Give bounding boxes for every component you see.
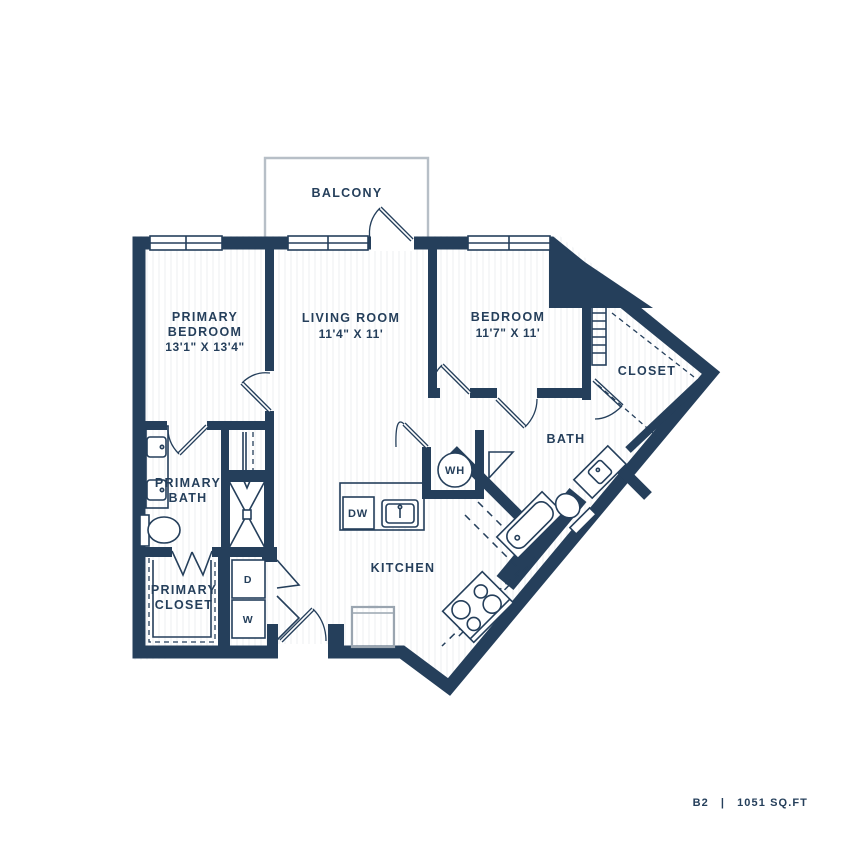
wall-suite-kitchen <box>265 430 274 562</box>
dishwasher-label: DW <box>348 508 368 520</box>
floor-plan-page: BALCONY <box>0 0 844 844</box>
window-bedroom <box>468 236 550 250</box>
water-heater-label: WH <box>445 465 465 477</box>
svg-text:PRIMARY: PRIMARY <box>155 476 221 490</box>
wall-primarybed-living <box>265 249 274 371</box>
wall-closet-top-left <box>142 547 172 557</box>
wall-wh-bottom <box>422 490 484 499</box>
kitchen-sink <box>382 500 418 527</box>
primary-bedroom-label: PRIMARY BEDROOM 13'1" X 13'4" <box>165 310 245 354</box>
wall-living-bedroom <box>428 249 437 388</box>
wall-linen-shower <box>221 470 274 481</box>
entry-opening <box>278 644 328 663</box>
wall-closet-dw <box>218 547 230 648</box>
entry-jamb-right <box>328 624 344 650</box>
balcony-label: BALCONY <box>312 186 383 200</box>
wall-wh-right <box>475 430 484 499</box>
svg-text:BATH: BATH <box>169 491 208 505</box>
svg-text:BEDROOM: BEDROOM <box>168 325 242 339</box>
shower <box>229 481 265 548</box>
svg-text:LIVING ROOM: LIVING ROOM <box>302 311 400 325</box>
svg-text:PRIMARY: PRIMARY <box>151 583 217 597</box>
floor-plan-svg: BALCONY <box>0 0 844 844</box>
svg-text:BEDROOM: BEDROOM <box>471 310 545 324</box>
washer-label: W <box>243 614 254 626</box>
kitchen-label: KITCHEN <box>371 561 436 575</box>
bath-label: BATH <box>547 432 586 446</box>
windows <box>150 236 550 250</box>
unit-area-footer: B2|1051 SQ.FT <box>693 797 808 809</box>
corner-wall-wedge <box>549 238 653 308</box>
svg-text:13'1" X 13'4": 13'1" X 13'4" <box>165 340 245 354</box>
window-living-room <box>288 236 368 250</box>
window-primary-bedroom <box>150 236 222 250</box>
wall-primarybed-bath-right <box>207 421 274 430</box>
wall-bedroom-closet <box>582 305 591 400</box>
svg-text:PRIMARY: PRIMARY <box>172 310 238 324</box>
svg-text:CLOSET: CLOSET <box>155 598 214 612</box>
shower-drain <box>243 510 251 519</box>
svg-text:11'7" X 11': 11'7" X 11' <box>476 326 541 340</box>
wall-bedroom-bottom-mid <box>470 388 497 398</box>
entry-jamb-left <box>267 624 278 650</box>
balcony: BALCONY <box>265 158 428 240</box>
svg-text:11'4" X 11': 11'4" X 11' <box>319 327 384 341</box>
wall-bedroom-bottom-left <box>428 388 440 398</box>
dryer-label: D <box>244 574 252 586</box>
wall-shower-left <box>221 481 229 548</box>
wall-linen-left <box>221 430 229 474</box>
primary-closet-label: PRIMARY CLOSET <box>151 583 217 612</box>
closet-label: CLOSET <box>618 364 677 378</box>
